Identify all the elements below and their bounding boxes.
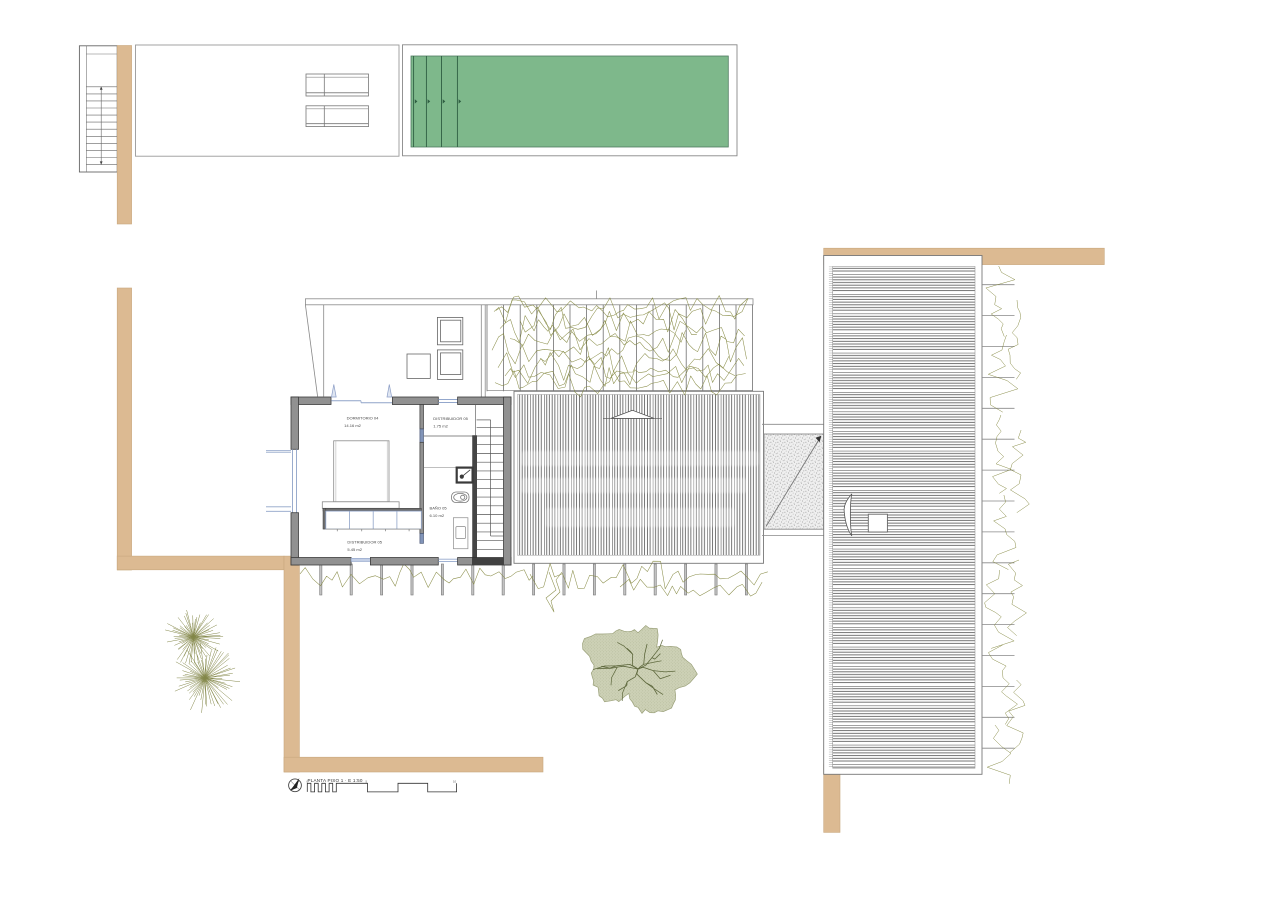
svg-text:DISTRIBUIDOR 05: DISTRIBUIDOR 05 [433,416,468,421]
svg-text:6.10 m2: 6.10 m2 [430,513,445,518]
svg-text:5.45 m2: 5.45 m2 [347,547,362,552]
svg-text:10: 10 [453,780,457,784]
svg-text:DISTRIBUIDOR 05: DISTRIBUIDOR 05 [347,540,382,545]
svg-text:DORMITORIO 04: DORMITORIO 04 [347,416,380,421]
svg-text:14.16 m2: 14.16 m2 [344,423,362,428]
svg-text:1.75 m2: 1.75 m2 [433,423,448,428]
svg-text:PLANTA PISO 1 · E 1:50: PLANTA PISO 1 · E 1:50 [308,778,363,783]
svg-text:BAÑO 05: BAÑO 05 [430,506,448,511]
